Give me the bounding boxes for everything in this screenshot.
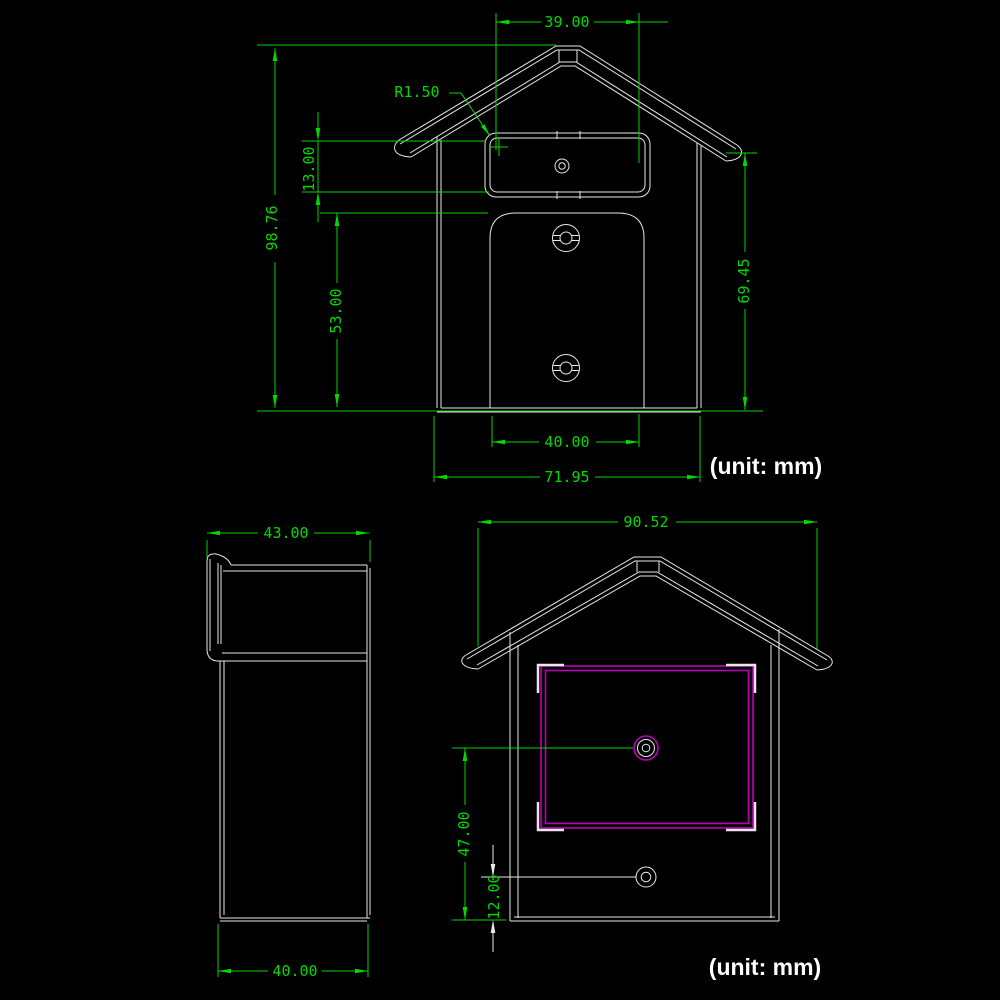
dim-overall-width: 71.95 bbox=[544, 468, 589, 486]
dim-back-overall-width: 90.52 bbox=[623, 513, 668, 531]
unit-note-top: (unit: mm) bbox=[710, 453, 822, 479]
dim-window-height: 13.00 bbox=[300, 146, 318, 191]
dim-window-width: 39.00 bbox=[544, 13, 589, 31]
dim-slot-height: 53.00 bbox=[327, 288, 345, 333]
dim-corner-radius: R1.50 bbox=[394, 83, 439, 101]
cad-drawing-canvas: 39.00 R1.50 98.76 13.00 53.00 69.45 bbox=[0, 0, 1000, 1000]
dim-slot-width: 40.00 bbox=[544, 433, 589, 451]
dim-lower-hole-height: 12.00 bbox=[485, 874, 503, 919]
unit-note-bottom: (unit: mm) bbox=[709, 954, 821, 980]
dim-upper-hole-height: 47.00 bbox=[455, 811, 473, 856]
dim-overall-depth: 43.00 bbox=[263, 524, 308, 542]
background bbox=[0, 0, 1000, 1000]
dim-side-height: 69.45 bbox=[735, 258, 753, 303]
cad-drawing: 39.00 R1.50 98.76 13.00 53.00 69.45 bbox=[0, 0, 1000, 1000]
dim-overall-height: 98.76 bbox=[263, 205, 281, 250]
dim-body-depth: 40.00 bbox=[272, 962, 317, 980]
